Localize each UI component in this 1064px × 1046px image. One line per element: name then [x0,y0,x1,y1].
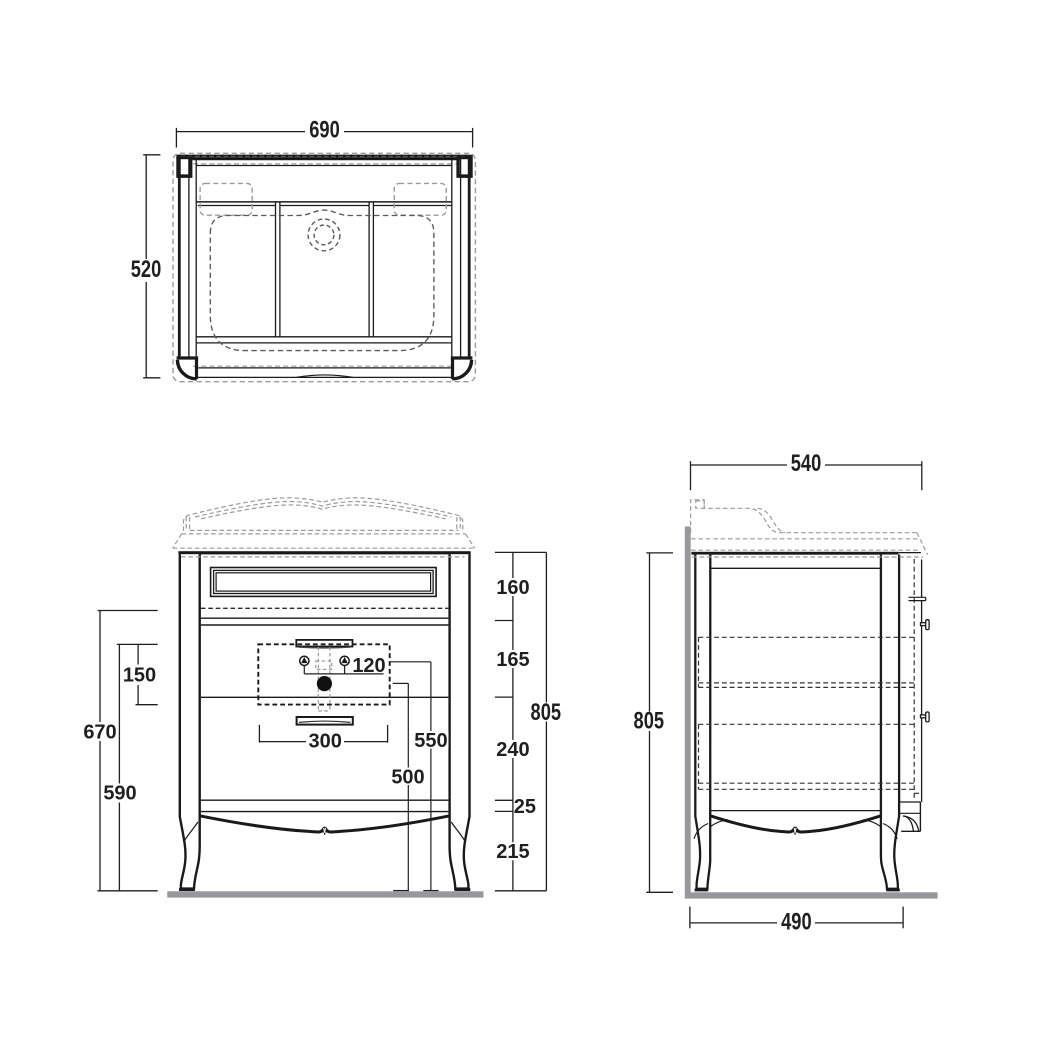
svg-text:160: 160 [496,577,529,599]
svg-text:25: 25 [514,796,536,818]
svg-text:150: 150 [123,665,156,687]
svg-text:500: 500 [391,767,424,789]
svg-text:690: 690 [309,117,340,144]
svg-text:120: 120 [352,655,385,677]
svg-text:590: 590 [103,783,136,805]
svg-text:540: 540 [791,450,822,477]
svg-text:805: 805 [531,699,562,726]
svg-text:300: 300 [309,731,342,753]
svg-text:165: 165 [496,649,529,671]
svg-text:490: 490 [781,908,812,935]
svg-text:215: 215 [496,841,529,863]
svg-text:240: 240 [496,739,529,761]
svg-text:550: 550 [414,730,447,752]
svg-text:520: 520 [131,256,162,283]
svg-text:670: 670 [83,721,116,743]
svg-text:805: 805 [634,707,665,734]
